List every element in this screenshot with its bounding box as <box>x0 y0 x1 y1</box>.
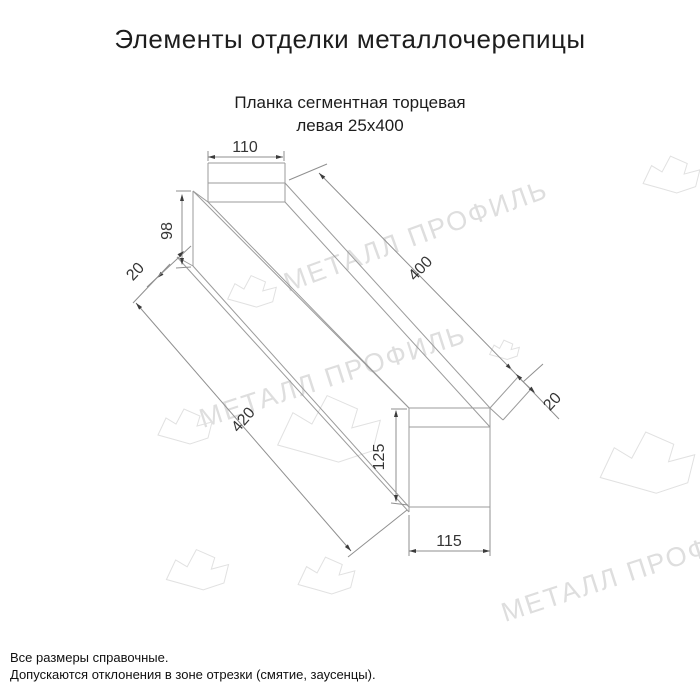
document-page: МЕТАЛЛ ПРОФИЛЬ МЕТАЛЛ ПРОФИЛЬ МЕТАЛЛ ПРО… <box>0 0 700 700</box>
dim-value-110: 110 <box>232 139 258 156</box>
watermark-text: МЕТАЛЛ ПРОФИЛЬ <box>498 513 700 628</box>
dimension-right-fold: 20 <box>510 368 565 419</box>
footer-note-1: Все размеры справочные. <box>10 650 376 667</box>
dim-value-20-left: 20 <box>123 260 148 285</box>
dim-value-115: 115 <box>436 533 462 550</box>
subtitle-line-1: Планка сегментная торцевая <box>0 92 700 115</box>
dim-value-98: 98 <box>159 222 176 240</box>
dimension-left-fold: 20 <box>123 246 191 287</box>
dimension-left-face-height: 98 <box>159 191 191 268</box>
page-title: Элементы отделки металлочерепицы <box>0 24 700 55</box>
drawing-subtitle: Планка сегментная торцевая левая 25х400 <box>0 92 700 138</box>
far-end-profile <box>177 163 285 266</box>
watermark-layer: МЕТАЛЛ ПРОФИЛЬ МЕТАЛЛ ПРОФИЛЬ МЕТАЛЛ ПРО… <box>158 156 700 628</box>
dim-value-20-right: 20 <box>540 390 565 415</box>
dim-value-125: 125 <box>371 444 388 471</box>
dimension-bottom-width: 115 <box>409 510 490 556</box>
footer-notes: Все размеры справочные. Допускаются откл… <box>10 650 376 684</box>
footer-note-2: Допускаются отклонения в зоне отрезки (с… <box>10 667 376 684</box>
near-end-profile <box>409 377 531 548</box>
dimension-flange-width: 110 <box>208 139 284 161</box>
dim-value-400: 400 <box>405 253 436 284</box>
subtitle-line-2: левая 25х400 <box>0 115 700 138</box>
